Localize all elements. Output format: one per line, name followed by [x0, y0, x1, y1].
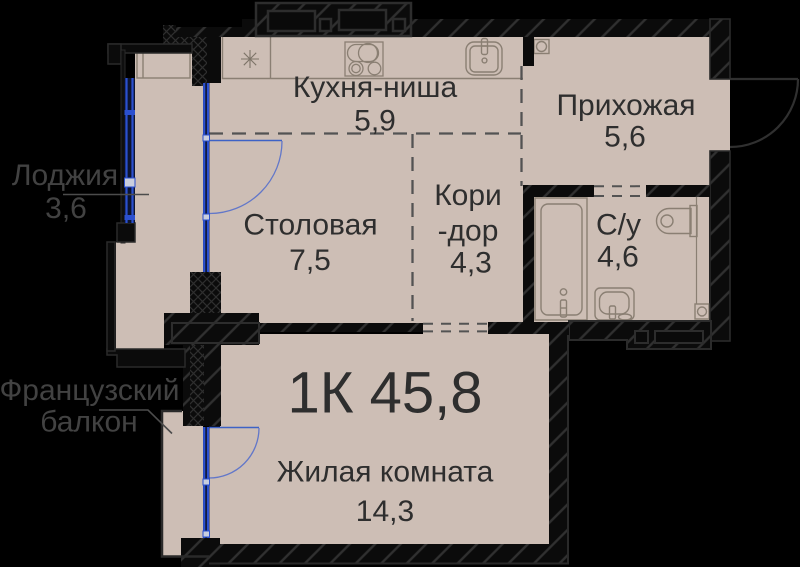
svg-text:Столовая: Столовая [243, 209, 377, 242]
svg-text:4,3: 4,3 [450, 247, 492, 280]
svg-text:С/у: С/у [596, 209, 641, 242]
svg-text:7,5: 7,5 [289, 244, 331, 277]
svg-text:3,6: 3,6 [45, 192, 87, 225]
svg-text:1К 45,8: 1К 45,8 [287, 361, 482, 426]
svg-text:Лоджия: Лоджия [12, 159, 118, 192]
svg-text:5,6: 5,6 [604, 121, 646, 154]
svg-text:Кори: Кори [434, 179, 502, 212]
svg-text:Кухня-ниша: Кухня-ниша [293, 71, 458, 104]
svg-text:14,3: 14,3 [356, 495, 414, 528]
svg-text:Жилая комната: Жилая комната [277, 456, 494, 489]
svg-text:-дор: -дор [438, 215, 499, 248]
svg-text:Французский: Французский [0, 374, 180, 407]
svg-text:5,9: 5,9 [354, 105, 396, 138]
svg-text:Прихожая: Прихожая [556, 89, 695, 122]
svg-text:4,6: 4,6 [597, 241, 639, 274]
